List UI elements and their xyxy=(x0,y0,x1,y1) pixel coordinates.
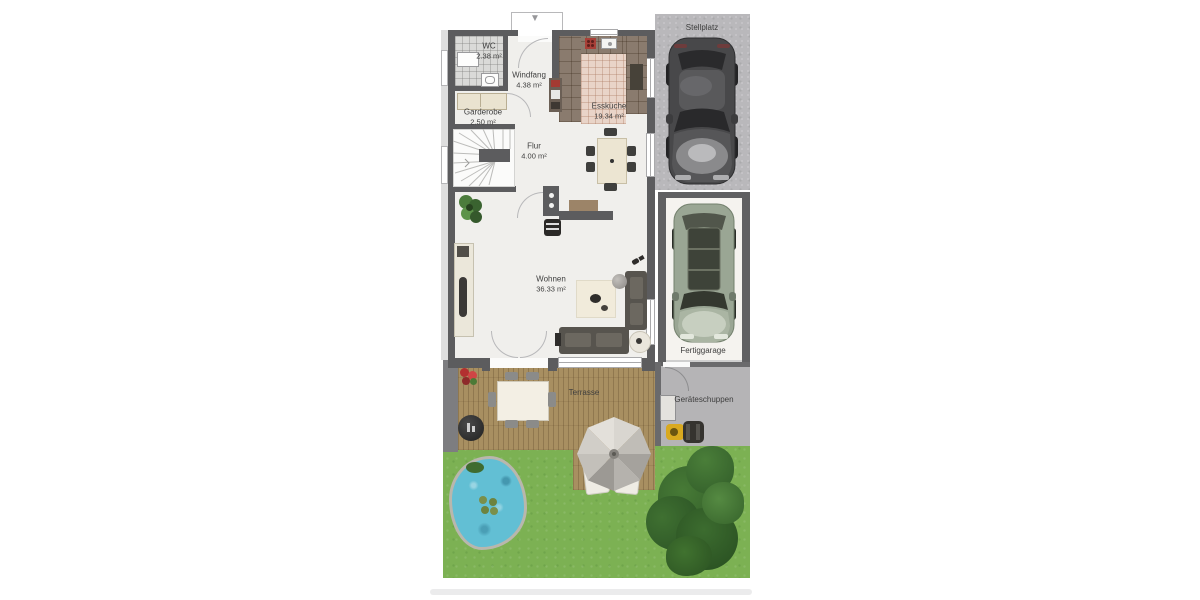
wall-stub xyxy=(482,358,490,371)
flower-pot xyxy=(458,366,480,388)
window xyxy=(646,58,655,98)
stellplatz-car xyxy=(666,36,738,186)
label-fertiggarage: Fertiggarage xyxy=(680,346,725,356)
dining-chair xyxy=(586,162,595,172)
chimney-flue xyxy=(549,203,554,208)
label-windfang: Windfang4.38 m² xyxy=(512,70,546,89)
garden-tree xyxy=(646,438,748,582)
label-wc: WC2.38 m² xyxy=(476,41,501,60)
side-table xyxy=(629,331,651,353)
wall-stub xyxy=(548,358,557,371)
wall-wc xyxy=(503,36,508,91)
wc-toilet xyxy=(481,73,499,87)
kitchen-counter-left xyxy=(559,36,581,122)
terrace-chair xyxy=(548,392,556,407)
label-esskueche: Essküche19.34 m² xyxy=(592,101,627,120)
wood-stove xyxy=(544,219,561,236)
kitchen-sink xyxy=(601,38,617,49)
staircase xyxy=(453,129,515,187)
wall-stub xyxy=(642,358,655,371)
french-door-opening xyxy=(490,358,548,368)
sideboard-bench xyxy=(569,200,598,211)
dining-chair xyxy=(627,146,636,156)
pond-plant xyxy=(466,462,484,473)
dining-chair xyxy=(627,162,636,172)
rug xyxy=(576,280,616,318)
dining-chair xyxy=(586,146,595,156)
dining-chair xyxy=(604,183,617,191)
dining-table xyxy=(597,138,627,184)
terrace-table xyxy=(497,381,549,421)
interior-wall xyxy=(559,211,613,220)
parasol xyxy=(575,415,653,493)
terrace-chair xyxy=(526,420,539,428)
pond-water-lily xyxy=(477,494,499,516)
chimney-flue xyxy=(549,193,554,198)
label-terrasse: Terrasse xyxy=(569,388,600,398)
label-flur: Flur4.00 m² xyxy=(521,141,546,160)
shed-top-wall xyxy=(690,362,750,367)
terrace-chair xyxy=(505,372,518,380)
grill xyxy=(458,415,484,441)
floor-lamp xyxy=(612,274,627,289)
garage-car xyxy=(672,202,736,344)
label-stellplatz: Stellplatz xyxy=(686,23,718,33)
floor-plan-canvas: Stellplatz Fertiggarage Geräteschuppen xyxy=(0,0,1200,600)
indoor-plant xyxy=(457,193,485,227)
living-room-window xyxy=(558,357,642,368)
window xyxy=(646,133,655,177)
sofa xyxy=(559,327,629,354)
kitchen-tall-unit xyxy=(549,78,562,112)
window xyxy=(441,146,448,184)
label-wohnen: Wohnen36.33 m² xyxy=(536,274,566,293)
lawn-mower xyxy=(666,421,706,443)
label-geraeteschuppen: Geräteschuppen xyxy=(674,395,733,405)
chimney-wall xyxy=(543,186,559,216)
kitchen-stove xyxy=(585,38,596,49)
label-garderobe: Garderobe2.50 m² xyxy=(464,107,502,126)
kitchen-fridge xyxy=(630,64,643,90)
power-plug-icon xyxy=(632,256,644,266)
speaker xyxy=(555,333,561,346)
window xyxy=(441,50,448,86)
media-cabinet xyxy=(454,243,474,337)
sofa-chaise xyxy=(625,271,647,330)
terrace-chair xyxy=(488,392,496,407)
terrace-chair xyxy=(505,420,518,428)
dining-chair xyxy=(604,128,617,136)
entrance-arrow-icon: ▼ xyxy=(530,13,540,24)
page-shadow xyxy=(430,589,752,595)
terrace-chair xyxy=(526,372,539,380)
